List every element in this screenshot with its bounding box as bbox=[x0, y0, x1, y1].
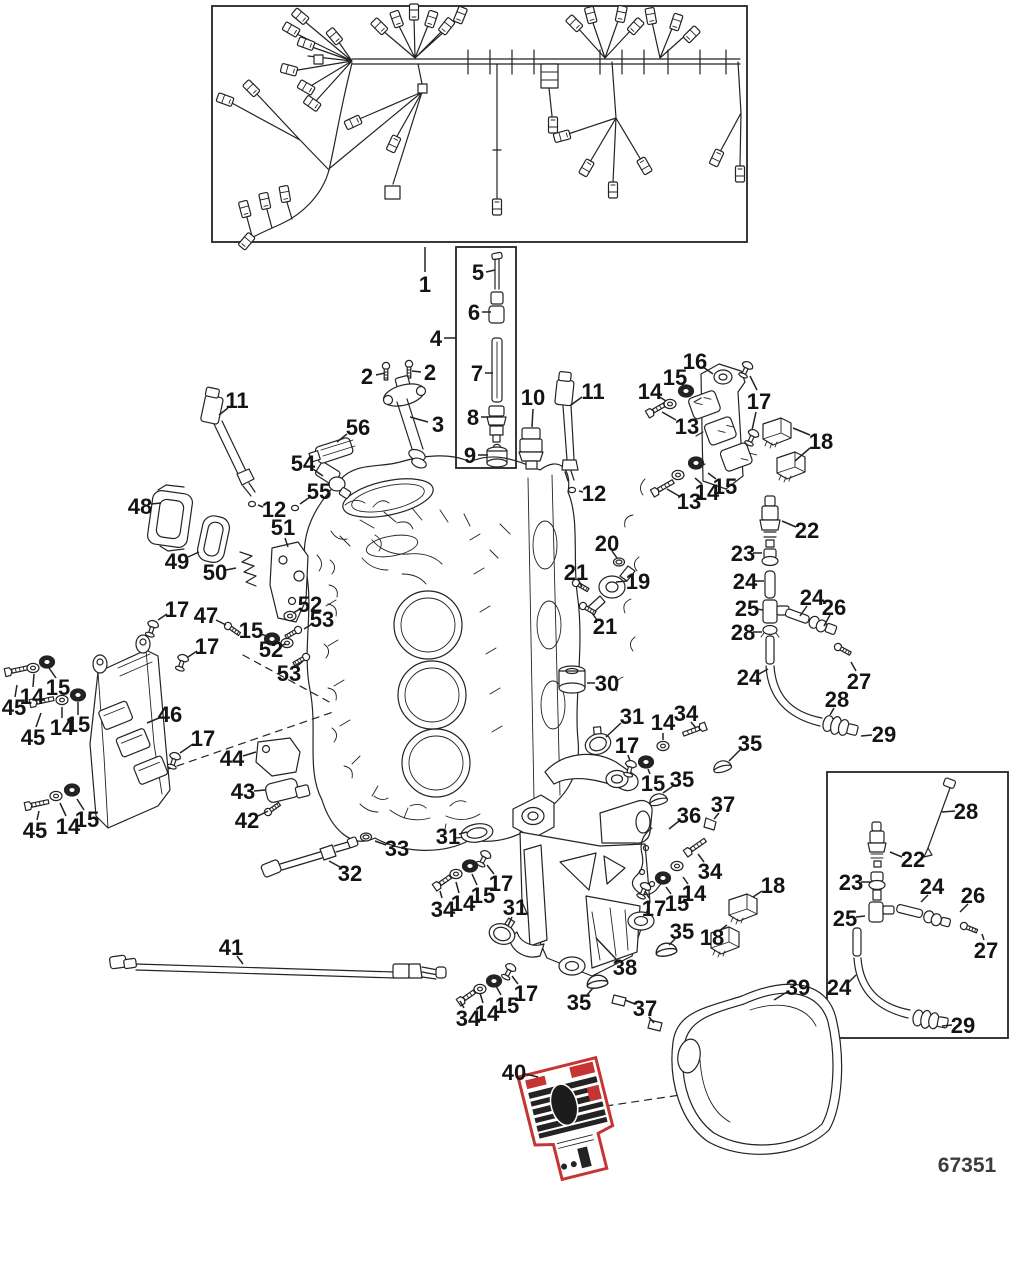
callout-leader bbox=[861, 735, 872, 736]
callout-leader bbox=[410, 417, 428, 422]
callout-27: 27 bbox=[847, 669, 871, 694]
callout-25: 25 bbox=[735, 596, 759, 621]
callout-leader bbox=[750, 376, 757, 390]
callout-49: 49 bbox=[165, 549, 189, 574]
figure-code: 67351 bbox=[938, 1154, 997, 1177]
sensor-sketches-top bbox=[200, 360, 578, 510]
callout-leader bbox=[188, 552, 199, 557]
callout-40: 40 bbox=[502, 1060, 526, 1085]
callout-15: 15 bbox=[75, 807, 99, 832]
callout-13: 13 bbox=[675, 414, 699, 439]
callout-53: 53 bbox=[310, 607, 334, 632]
callout-15: 15 bbox=[46, 675, 70, 700]
callout-47: 47 bbox=[194, 603, 218, 628]
callout-51: 51 bbox=[271, 515, 295, 540]
callout-leader bbox=[151, 503, 161, 504]
callout-17: 17 bbox=[165, 597, 189, 622]
callout-37: 37 bbox=[633, 996, 657, 1021]
callout-3: 3 bbox=[432, 412, 444, 437]
oil-passage-sketch bbox=[381, 375, 427, 469]
callout-16: 16 bbox=[683, 349, 707, 374]
callout-31: 31 bbox=[620, 704, 644, 729]
callout-2: 2 bbox=[424, 360, 436, 385]
callout-14: 14 bbox=[651, 710, 676, 735]
callout-24: 24 bbox=[737, 665, 762, 690]
callout-28: 28 bbox=[731, 620, 755, 645]
map-sensor-sketches bbox=[256, 738, 310, 817]
callout-15: 15 bbox=[713, 474, 737, 499]
callout-8: 8 bbox=[467, 405, 479, 430]
sensor-clip-sketch bbox=[309, 437, 355, 464]
callout-10: 10 bbox=[521, 385, 545, 410]
callout-17: 17 bbox=[195, 634, 219, 659]
callout-leader bbox=[254, 790, 265, 791]
callout-39: 39 bbox=[786, 975, 810, 1000]
clip-37 bbox=[704, 818, 716, 830]
callout-48: 48 bbox=[128, 494, 152, 519]
callout-leader bbox=[856, 916, 865, 917]
callout-leader bbox=[486, 270, 495, 272]
callout-35: 35 bbox=[670, 767, 694, 792]
callout-17: 17 bbox=[615, 733, 639, 758]
callout-41: 41 bbox=[219, 935, 243, 960]
callout-30: 30 bbox=[595, 671, 619, 696]
callout-leader bbox=[243, 752, 256, 756]
callout-42: 42 bbox=[235, 808, 259, 833]
callout-9: 9 bbox=[464, 443, 476, 468]
callout-17: 17 bbox=[747, 389, 771, 414]
callout-12: 12 bbox=[582, 481, 606, 506]
callout-35: 35 bbox=[738, 731, 762, 756]
callout-18: 18 bbox=[700, 925, 724, 950]
callout-28: 28 bbox=[954, 799, 978, 824]
injector-parts-sketch bbox=[487, 252, 507, 467]
callout-17: 17 bbox=[514, 981, 538, 1006]
callout-36: 36 bbox=[677, 803, 701, 828]
callout-5: 5 bbox=[472, 260, 484, 285]
spring-sketch bbox=[240, 552, 256, 586]
callout-54: 54 bbox=[291, 451, 316, 476]
callout-17: 17 bbox=[191, 726, 215, 751]
callout-46: 46 bbox=[158, 702, 182, 727]
wiring-harness-sketch bbox=[216, 4, 744, 250]
callout-44: 44 bbox=[220, 746, 245, 771]
callout-17: 17 bbox=[642, 896, 666, 921]
temp-sensor-right-sketch bbox=[555, 371, 578, 492]
callout-29: 29 bbox=[872, 722, 896, 747]
engine-block-sketch bbox=[304, 456, 645, 850]
callout-26: 26 bbox=[822, 595, 846, 620]
callout-27: 27 bbox=[974, 938, 998, 963]
callout-33: 33 bbox=[385, 836, 409, 861]
callout-21: 21 bbox=[564, 560, 588, 585]
callout-19: 19 bbox=[626, 569, 650, 594]
callout-52: 52 bbox=[259, 637, 283, 662]
callout-14: 14 bbox=[638, 379, 663, 404]
callout-17: 17 bbox=[489, 871, 513, 896]
callout-1: 1 bbox=[419, 272, 431, 297]
callout-23: 23 bbox=[731, 541, 755, 566]
callout-37: 37 bbox=[711, 792, 735, 817]
callout-18: 18 bbox=[761, 873, 785, 898]
callout-leader bbox=[532, 409, 533, 427]
callout-55: 55 bbox=[307, 479, 331, 504]
callout-35: 35 bbox=[567, 990, 591, 1015]
callout-leader bbox=[793, 428, 810, 435]
callout-leader bbox=[752, 412, 756, 430]
callout-34: 34 bbox=[674, 701, 699, 726]
callout-leader bbox=[412, 371, 421, 372]
callout-15: 15 bbox=[66, 712, 90, 737]
callout-4: 4 bbox=[430, 326, 443, 351]
callout-11: 11 bbox=[581, 379, 604, 404]
callout-43: 43 bbox=[231, 779, 255, 804]
callout-23: 23 bbox=[839, 870, 863, 895]
callout-24: 24 bbox=[827, 975, 852, 1000]
callout-22: 22 bbox=[795, 518, 819, 543]
callout-31: 31 bbox=[436, 824, 460, 849]
callout-15: 15 bbox=[641, 771, 665, 796]
callout-29: 29 bbox=[951, 1013, 975, 1038]
callout-21: 21 bbox=[593, 614, 617, 639]
callout-56: 56 bbox=[346, 415, 370, 440]
oxygen-sensor-sketch bbox=[109, 955, 446, 979]
callout-14: 14 bbox=[20, 684, 45, 709]
callout-7: 7 bbox=[471, 361, 483, 386]
parts-diagram-page: 1422356789101111121213141516171813141519… bbox=[0, 0, 1013, 1275]
callout-32: 32 bbox=[338, 861, 362, 886]
callout-35: 35 bbox=[670, 919, 694, 944]
callout-22: 22 bbox=[901, 847, 925, 872]
fuel-fitting-29 bbox=[821, 714, 859, 740]
callout-45: 45 bbox=[23, 818, 47, 843]
callout-24: 24 bbox=[920, 874, 945, 899]
flywheel-cover-sketch bbox=[672, 984, 842, 1154]
callout-25: 25 bbox=[833, 906, 857, 931]
callout-20: 20 bbox=[595, 531, 619, 556]
callout-26: 26 bbox=[961, 883, 985, 908]
callout-leader bbox=[226, 568, 236, 570]
callout-45: 45 bbox=[21, 725, 45, 750]
callout-38: 38 bbox=[613, 955, 637, 980]
callout-28: 28 bbox=[825, 687, 849, 712]
callout-50: 50 bbox=[203, 560, 227, 585]
callout-15: 15 bbox=[665, 891, 689, 916]
callout-18: 18 bbox=[809, 429, 833, 454]
callout-6: 6 bbox=[468, 300, 480, 325]
callout-2: 2 bbox=[361, 364, 373, 389]
injector-parts-box bbox=[456, 247, 516, 468]
exploded-parts-diagram: 1422356789101111121213141516171813141519… bbox=[0, 0, 1013, 1275]
callout-24: 24 bbox=[733, 569, 758, 594]
callout-31: 31 bbox=[503, 895, 527, 920]
callout-11: 11 bbox=[225, 388, 248, 413]
callout-53: 53 bbox=[277, 661, 301, 686]
